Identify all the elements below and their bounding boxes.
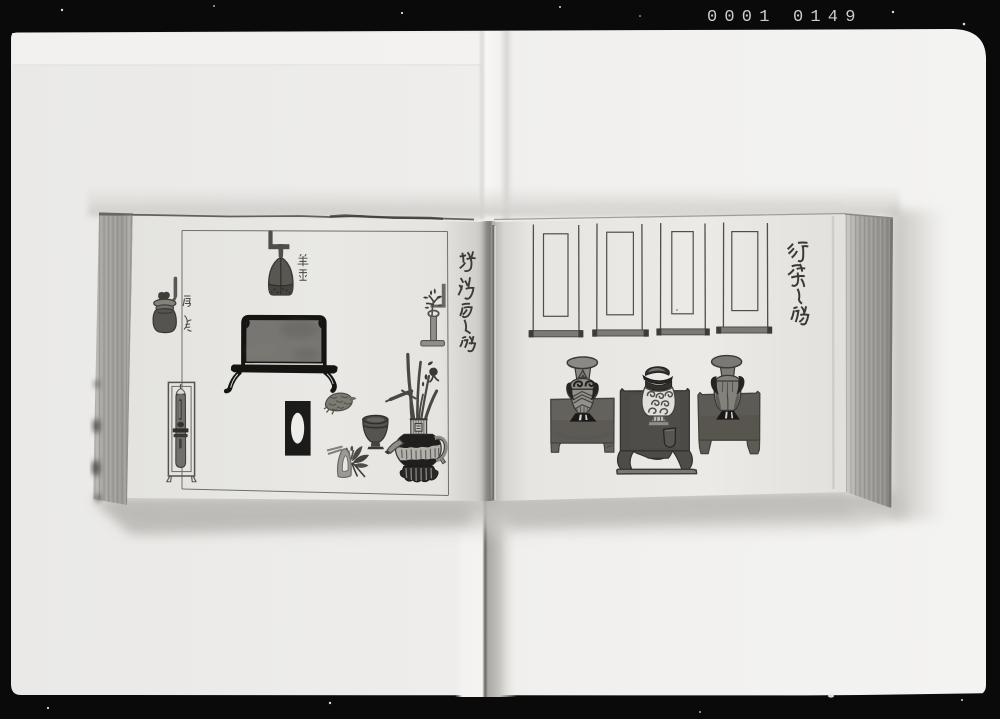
svg-text:0001: 0001 xyxy=(707,8,777,27)
svg-text:0149: 0149 xyxy=(793,8,863,27)
